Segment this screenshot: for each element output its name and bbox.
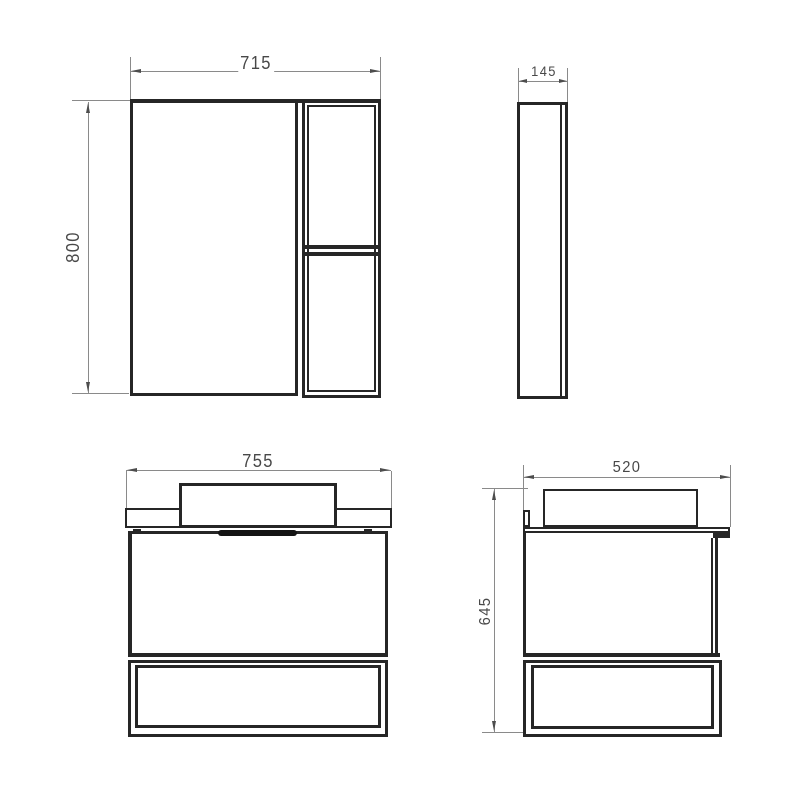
dimension-arrow-right-icon bbox=[720, 475, 730, 479]
technical-drawing-canvas: 715 800 145 755 bbox=[0, 0, 800, 800]
drawer-bottom-edge bbox=[523, 653, 720, 657]
dimension-line bbox=[523, 477, 731, 478]
washbasin-profile-outline bbox=[543, 489, 698, 527]
cabinet-front-edge bbox=[715, 538, 718, 657]
countertop-profile bbox=[523, 527, 730, 533]
door-panel-edge bbox=[711, 538, 713, 657]
extension-line bbox=[482, 488, 528, 489]
open-shelf-inner-outline bbox=[531, 665, 714, 729]
dimension-label-depth: 520 bbox=[611, 460, 643, 476]
rear-upstand-outline bbox=[523, 510, 530, 527]
dimension-line bbox=[494, 489, 495, 733]
dimension-arrow-left-icon bbox=[524, 475, 534, 479]
dimension-arrow-down-icon bbox=[492, 721, 496, 731]
dimension-arrow-up-icon bbox=[492, 490, 496, 500]
dimension-label-height: 645 bbox=[478, 595, 494, 627]
cabinet-back-edge bbox=[523, 533, 526, 657]
vanity-unit-side-view: 520 645 bbox=[0, 0, 800, 800]
